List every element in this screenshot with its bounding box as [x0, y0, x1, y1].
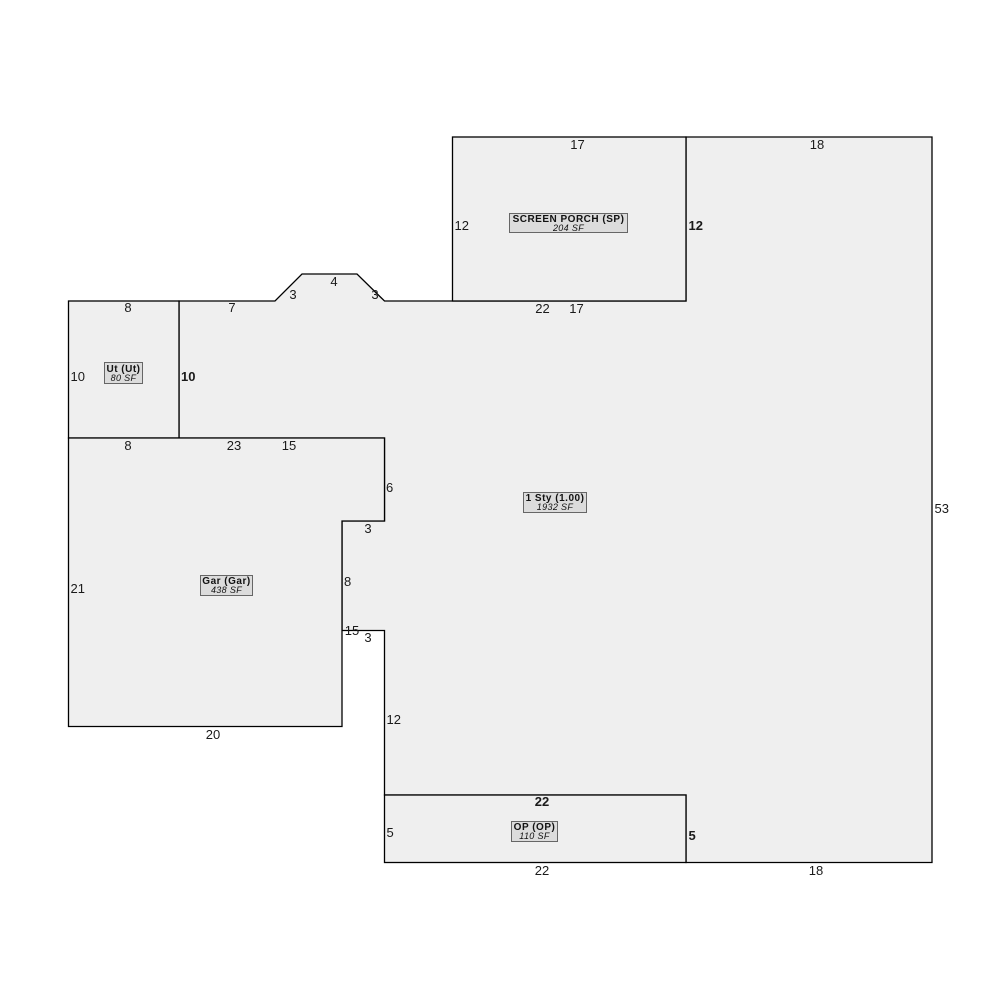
- svg-text:23: 23: [227, 438, 241, 453]
- svg-text:20: 20: [206, 727, 220, 742]
- svg-text:8: 8: [344, 574, 351, 589]
- svg-text:7: 7: [228, 300, 235, 315]
- svg-text:204 SF: 204 SF: [552, 223, 584, 233]
- svg-text:5: 5: [387, 825, 394, 840]
- svg-text:4: 4: [330, 274, 337, 289]
- svg-text:17: 17: [569, 301, 583, 316]
- svg-text:6: 6: [386, 480, 393, 495]
- svg-text:80 SF: 80 SF: [111, 373, 137, 383]
- svg-text:17: 17: [570, 137, 584, 152]
- svg-text:8: 8: [124, 438, 131, 453]
- svg-text:5: 5: [689, 828, 696, 843]
- svg-text:53: 53: [935, 501, 949, 516]
- svg-text:15: 15: [282, 438, 296, 453]
- svg-text:1932 SF: 1932 SF: [537, 502, 574, 512]
- svg-text:3: 3: [371, 287, 378, 302]
- svg-text:3: 3: [364, 630, 371, 645]
- svg-text:22: 22: [535, 863, 549, 878]
- svg-text:22: 22: [535, 794, 549, 809]
- svg-text:18: 18: [809, 863, 823, 878]
- svg-text:10: 10: [71, 369, 85, 384]
- svg-text:21: 21: [71, 581, 85, 596]
- svg-text:22: 22: [535, 301, 549, 316]
- svg-text:12: 12: [387, 712, 401, 727]
- svg-text:3: 3: [289, 287, 296, 302]
- svg-text:12: 12: [689, 218, 703, 233]
- svg-text:18: 18: [810, 137, 824, 152]
- svg-text:15: 15: [345, 623, 359, 638]
- svg-text:3: 3: [364, 521, 371, 536]
- svg-text:110 SF: 110 SF: [519, 831, 550, 841]
- svg-text:438 SF: 438 SF: [211, 585, 242, 595]
- svg-text:12: 12: [455, 218, 469, 233]
- svg-text:8: 8: [124, 300, 131, 315]
- svg-text:10: 10: [181, 369, 195, 384]
